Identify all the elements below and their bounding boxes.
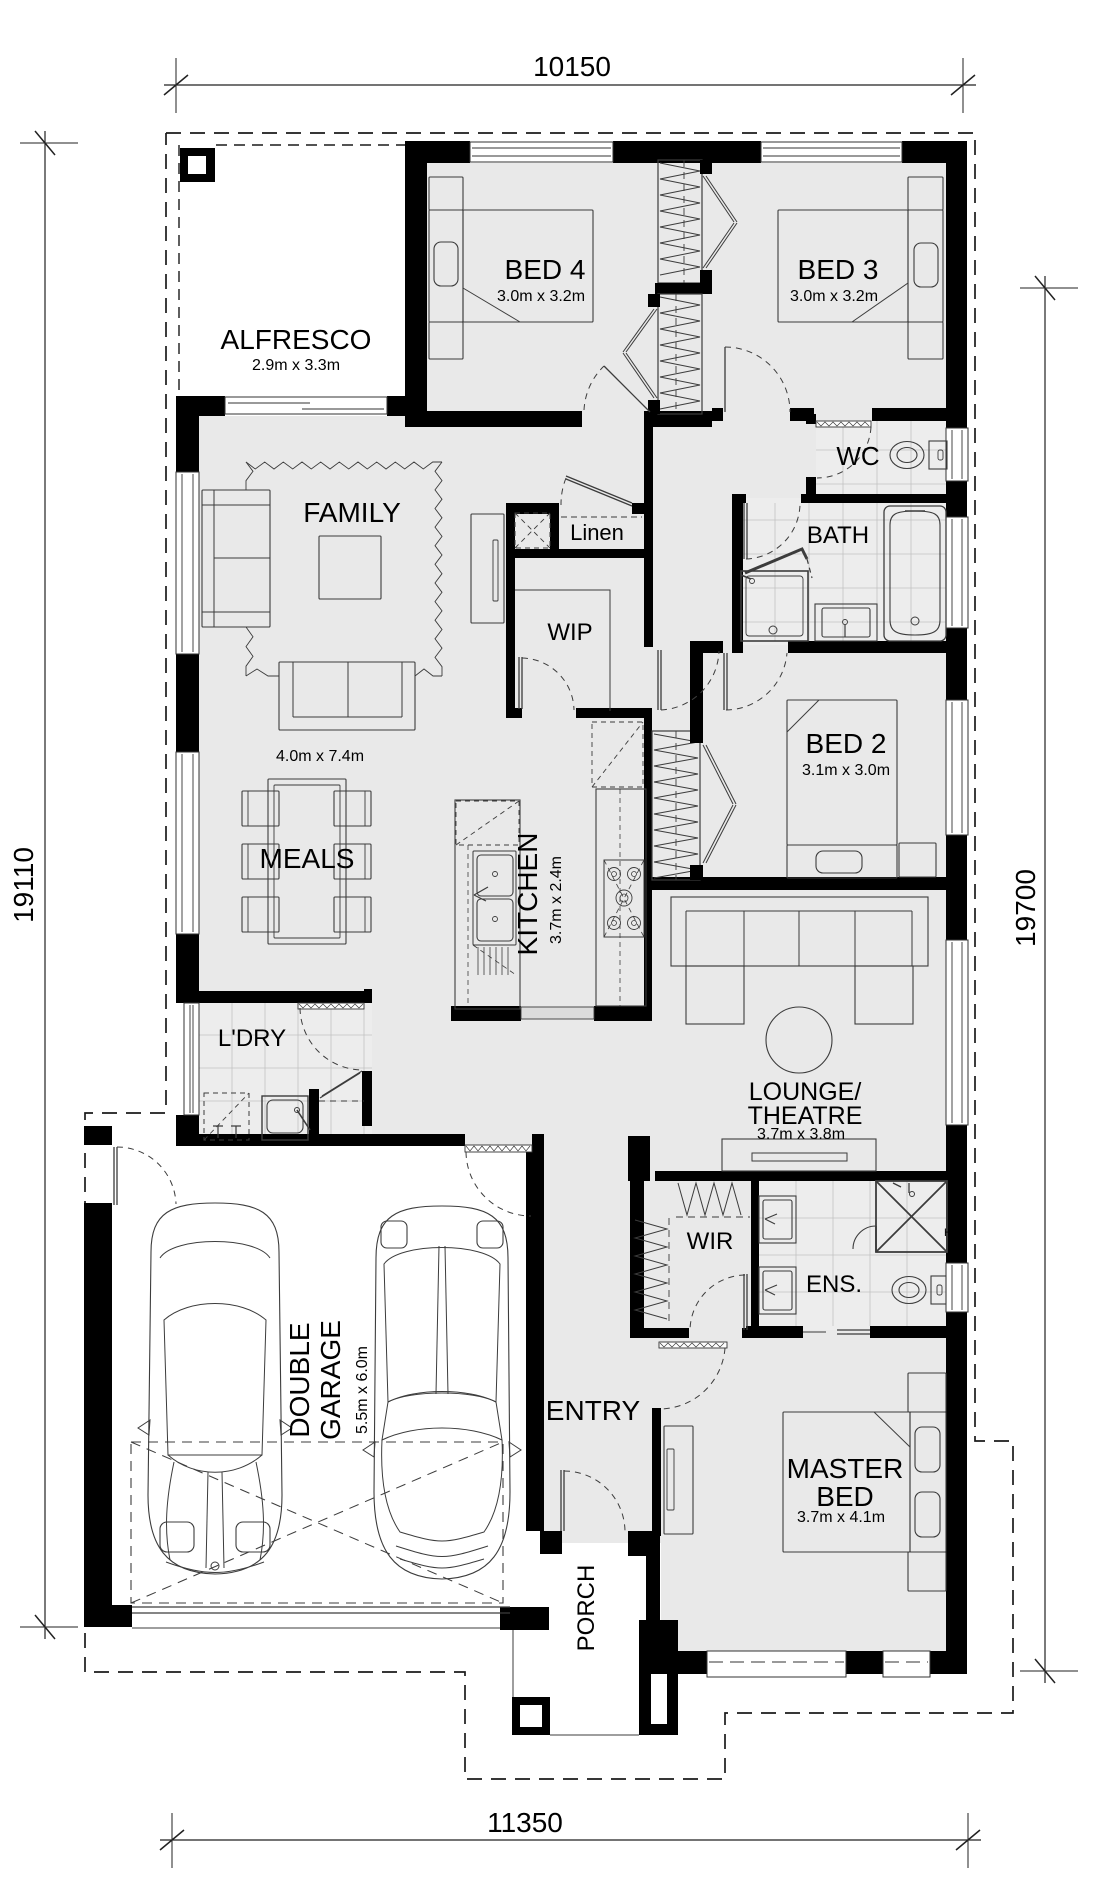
- svg-text:DOUBLE: DOUBLE: [284, 1322, 315, 1437]
- svg-text:WC: WC: [836, 441, 879, 471]
- svg-text:BATH: BATH: [807, 522, 869, 549]
- svg-text:3.7m x 4.1m: 3.7m x 4.1m: [797, 1509, 885, 1526]
- svg-text:3.1m x 3.0m: 3.1m x 3.0m: [802, 762, 890, 779]
- svg-text:H: H: [944, 1227, 952, 1239]
- svg-text:10150: 10150: [533, 51, 611, 82]
- svg-text:MEALS: MEALS: [260, 843, 355, 874]
- svg-text:BED 2: BED 2: [806, 728, 887, 759]
- svg-text:BED: BED: [816, 1481, 874, 1512]
- svg-text:L'DRY: L'DRY: [218, 1025, 286, 1052]
- svg-text:3.7m x 2.4m: 3.7m x 2.4m: [548, 856, 565, 944]
- svg-text:3.0m x 3.2m: 3.0m x 3.2m: [497, 288, 585, 305]
- svg-text:WIR: WIR: [687, 1228, 734, 1255]
- svg-text:ENS.: ENS.: [806, 1271, 862, 1298]
- svg-text:19700: 19700: [1010, 869, 1041, 947]
- svg-text:19110: 19110: [8, 847, 39, 923]
- svg-text:PORCH: PORCH: [573, 1565, 600, 1652]
- svg-text:BED 4: BED 4: [505, 254, 586, 285]
- svg-text:4.0m x 7.4m: 4.0m x 7.4m: [276, 748, 364, 765]
- svg-text:2.9m x 3.3m: 2.9m x 3.3m: [252, 357, 340, 374]
- svg-text:MASTER: MASTER: [787, 1453, 904, 1484]
- svg-text:ENTRY: ENTRY: [546, 1395, 641, 1426]
- svg-text:Linen: Linen: [570, 520, 624, 545]
- svg-text:5.5m x 6.0m: 5.5m x 6.0m: [354, 1346, 371, 1434]
- svg-text:KITCHEN: KITCHEN: [512, 833, 543, 956]
- svg-text:WIP: WIP: [547, 619, 592, 646]
- svg-text:BED 3: BED 3: [798, 254, 879, 285]
- svg-text:FAMILY: FAMILY: [303, 497, 401, 528]
- svg-text:ALFRESCO: ALFRESCO: [221, 324, 372, 355]
- svg-text:3.7m x 3.8m: 3.7m x 3.8m: [757, 1126, 845, 1143]
- svg-text:11350: 11350: [487, 1807, 563, 1838]
- svg-text:GARAGE: GARAGE: [315, 1320, 346, 1440]
- svg-text:3.0m x 3.2m: 3.0m x 3.2m: [790, 288, 878, 305]
